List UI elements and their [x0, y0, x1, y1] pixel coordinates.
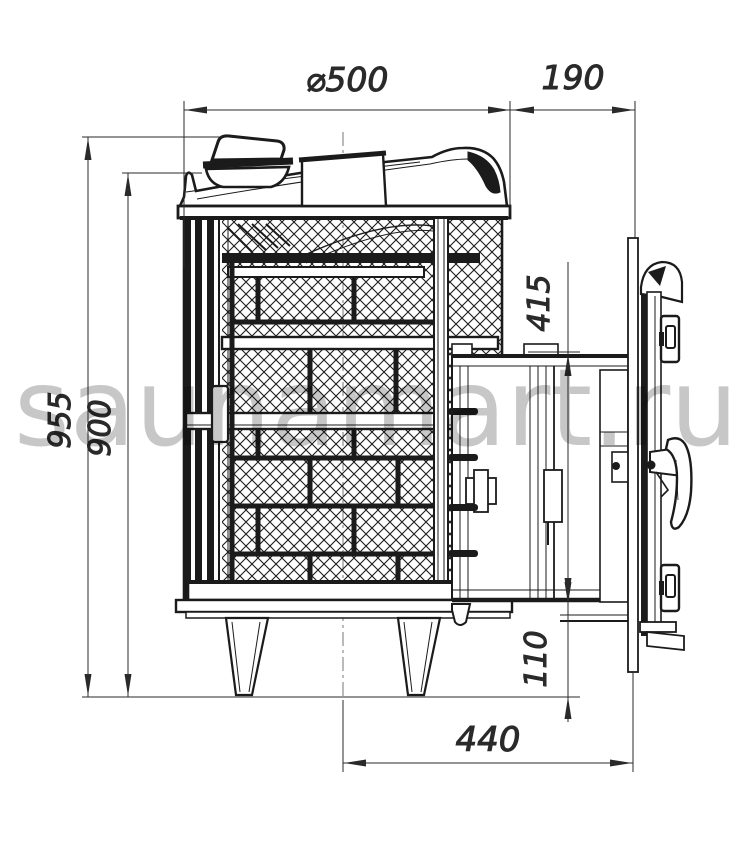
dim-label-440: 440: [456, 720, 521, 760]
watermark: saunamart.ru: [14, 356, 748, 463]
legs: [226, 618, 440, 695]
dim-label-110: 110: [519, 630, 554, 687]
leg-rear: [398, 618, 440, 695]
chimney-collar: [299, 153, 386, 206]
water-tank-lid: [203, 136, 293, 187]
inner-shelf: [228, 267, 424, 277]
technical-drawing-canvas: ⌀500 190 955 900 415 110 440 saunamart.r…: [0, 0, 748, 853]
dim-label-415: 415: [522, 274, 557, 331]
door-bottom-tab: [640, 622, 676, 632]
lid-rim: [203, 161, 293, 165]
dim-label-diameter-500: ⌀500: [306, 60, 389, 99]
leg-front: [226, 618, 268, 695]
dim-label-190: 190: [542, 58, 605, 97]
